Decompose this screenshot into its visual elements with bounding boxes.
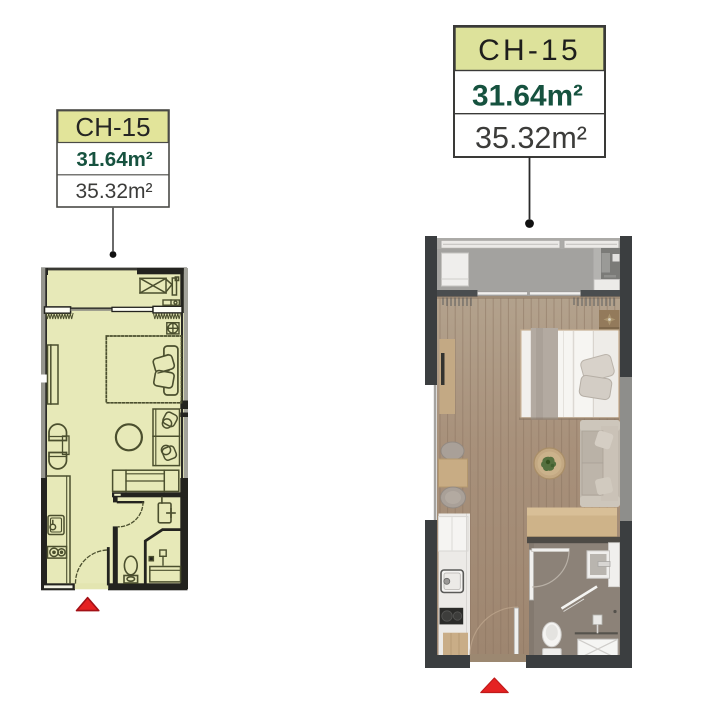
svg-text:35.32m²: 35.32m² (475, 121, 587, 155)
svg-text:31.64m²: 31.64m² (472, 79, 583, 112)
svg-text:CH-15: CH-15 (75, 112, 150, 142)
svg-text:31.64m²: 31.64m² (76, 148, 153, 171)
svg-text:35.32m²: 35.32m² (75, 180, 152, 203)
svg-text:CH-15: CH-15 (478, 34, 581, 67)
